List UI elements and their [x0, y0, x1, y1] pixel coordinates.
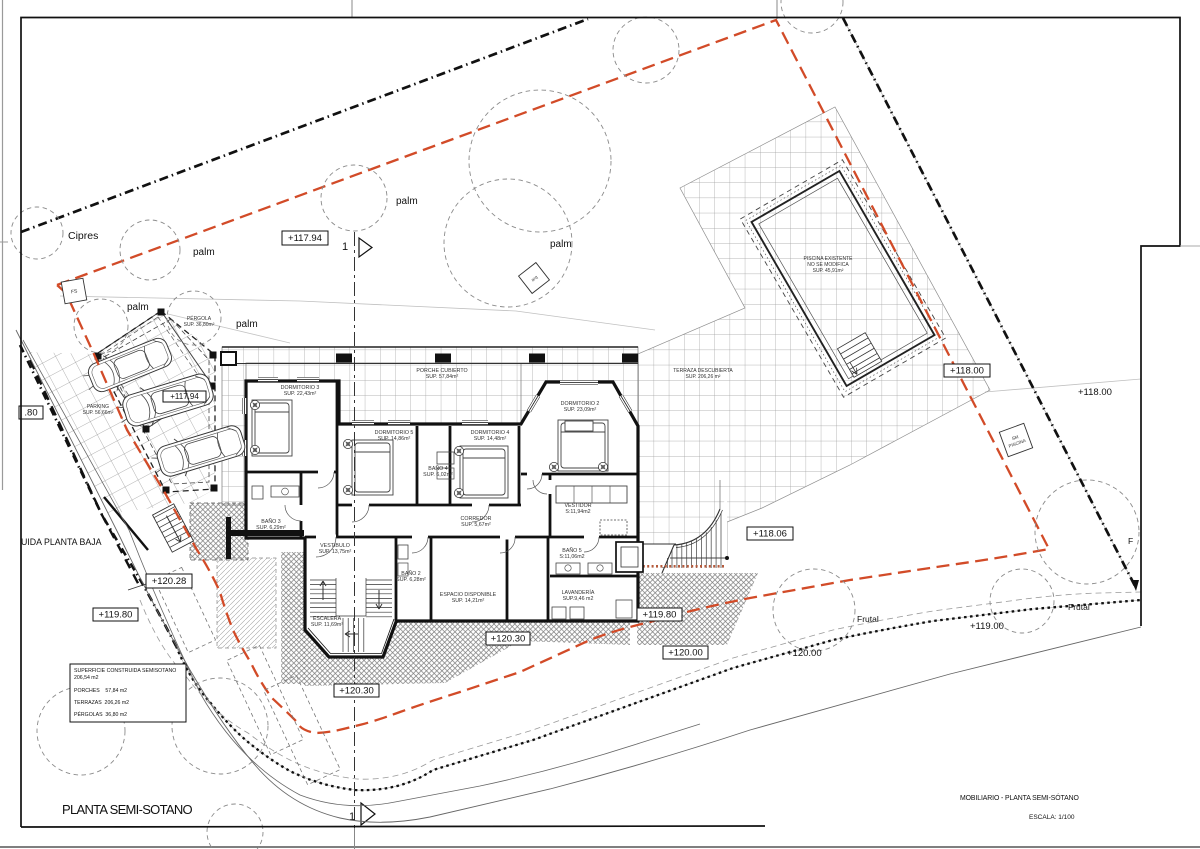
svg-text:.80: .80: [24, 408, 37, 419]
svg-text:DORMITORIO 2: DORMITORIO 2: [561, 401, 600, 407]
svg-text:palm: palm: [127, 302, 149, 313]
svg-text:+120.28: +120.28: [152, 576, 187, 587]
svg-text:BAÑO 5: BAÑO 5: [562, 547, 581, 554]
svg-text:Frutal: Frutal: [857, 614, 879, 624]
svg-text:palm: palm: [396, 196, 418, 207]
svg-text:SUP. 206,26 m²: SUP. 206,26 m²: [686, 374, 721, 380]
svg-text:SUP. 14,86m²: SUP. 14,86m²: [378, 436, 411, 442]
svg-text:SUP. 6,02m²: SUP. 6,02m²: [423, 472, 453, 478]
svg-text:SUP. 57,84m²: SUP. 57,84m²: [426, 374, 459, 380]
svg-text:UIDA PLANTA BAJA: UIDA PLANTA BAJA: [21, 537, 102, 547]
svg-text:1: 1: [349, 811, 355, 823]
svg-text:+120.30: +120.30: [339, 686, 374, 697]
svg-text:DORMITORIO 3: DORMITORIO 3: [281, 385, 320, 391]
svg-text:VESTIBULO: VESTIBULO: [320, 543, 350, 549]
svg-text:1: 1: [342, 241, 348, 253]
svg-text:BAÑO 4: BAÑO 4: [428, 465, 447, 472]
svg-text:TERRAZAS 206,26 m2: TERRAZAS 206,26 m2: [74, 700, 129, 706]
svg-text:palm: palm: [193, 247, 215, 258]
svg-text:ESCALERA: ESCALERA: [313, 616, 342, 622]
svg-text:+117.94: +117.94: [288, 233, 322, 244]
svg-text:PÉRGOLA: PÉRGOLA: [187, 315, 212, 322]
svg-text:S:11,94m2: S:11,94m2: [565, 509, 590, 515]
svg-text:SUP. 56,66m²: SUP. 56,66m²: [83, 410, 114, 416]
svg-text:LAVANDERÍA: LAVANDERÍA: [562, 589, 595, 596]
svg-text:SUP. 13,75m²: SUP. 13,75m²: [319, 549, 352, 555]
svg-text:BAÑO 2: BAÑO 2: [401, 570, 420, 577]
svg-text:CORREDOR: CORREDOR: [461, 516, 492, 522]
svg-text:SUP. 6,28m²: SUP. 6,28m²: [396, 577, 426, 583]
svg-text:PORCHE CUBIERTO: PORCHE CUBIERTO: [416, 368, 467, 374]
svg-text:SUP. 22,43m²: SUP. 22,43m²: [284, 391, 317, 397]
svg-text:SUP. 11,69m²: SUP. 11,69m²: [311, 622, 343, 628]
svg-text:SUP. 14,48m²: SUP. 14,48m²: [474, 436, 507, 442]
svg-text:+119.80: +119.80: [99, 610, 133, 621]
svg-text:palm: palm: [236, 319, 258, 330]
svg-text:S:11,06m2: S:11,06m2: [559, 554, 584, 560]
svg-text:BAÑO 3: BAÑO 3: [261, 518, 280, 525]
svg-text:F: F: [1128, 536, 1133, 546]
svg-text:+118.00: +118.00: [950, 366, 984, 377]
svg-text:+118.00: +118.00: [1078, 387, 1112, 398]
svg-text:ESCALA: 1/100: ESCALA: 1/100: [1029, 814, 1075, 821]
svg-text:+118.06: +118.06: [753, 529, 787, 540]
svg-text:DORMITORIO 4: DORMITORIO 4: [471, 430, 510, 436]
svg-text:SUPERFICIE CONSTRUIDA SEMISOTA: SUPERFICIE CONSTRUIDA SEMISOTANO: [74, 668, 176, 674]
svg-text:PÉRGOLAS 36,80 m2: PÉRGOLAS 36,80 m2: [74, 711, 127, 718]
svg-text:SUP. 5,67m²: SUP. 5,67m²: [461, 522, 491, 528]
svg-text:+120.00: +120.00: [668, 648, 703, 659]
svg-text:DORMITORIO 5: DORMITORIO 5: [375, 430, 414, 436]
svg-text:Frutal: Frutal: [1068, 602, 1090, 612]
svg-text:206,54 m2: 206,54 m2: [74, 675, 99, 681]
svg-text:+119.80: +119.80: [643, 610, 677, 621]
svg-text:VESTIDOR: VESTIDOR: [564, 503, 591, 509]
svg-text:PLANTA SEMI-SOTANO: PLANTA SEMI-SOTANO: [62, 802, 193, 817]
svg-text:+119.00: +119.00: [970, 621, 1004, 632]
svg-text:SUP. 14,21m²: SUP. 14,21m²: [452, 598, 485, 604]
svg-text:+120.30: +120.30: [491, 634, 526, 645]
svg-text:+120.00: +120.00: [787, 648, 822, 659]
svg-text:ESPACIO DISPONIBLE: ESPACIO DISPONIBLE: [440, 592, 497, 598]
svg-text:palm: palm: [550, 239, 572, 250]
svg-text:SUP. 45,91m²: SUP. 45,91m²: [813, 268, 844, 274]
svg-text:SUP. 36,80m²: SUP. 36,80m²: [184, 322, 215, 328]
svg-text:SUP.9,46 m2: SUP.9,46 m2: [563, 596, 594, 602]
svg-text:+117.94: +117.94: [170, 392, 199, 401]
svg-text:Cipres: Cipres: [68, 230, 98, 242]
svg-text:SUP. 23,09m²: SUP. 23,09m²: [564, 407, 597, 413]
svg-text:MOBILIARIO - PLANTA SEMI-SÓTAN: MOBILIARIO - PLANTA SEMI-SÓTANO: [960, 793, 1080, 802]
svg-text:PORCHES 57,84 m2: PORCHES 57,84 m2: [74, 688, 127, 694]
